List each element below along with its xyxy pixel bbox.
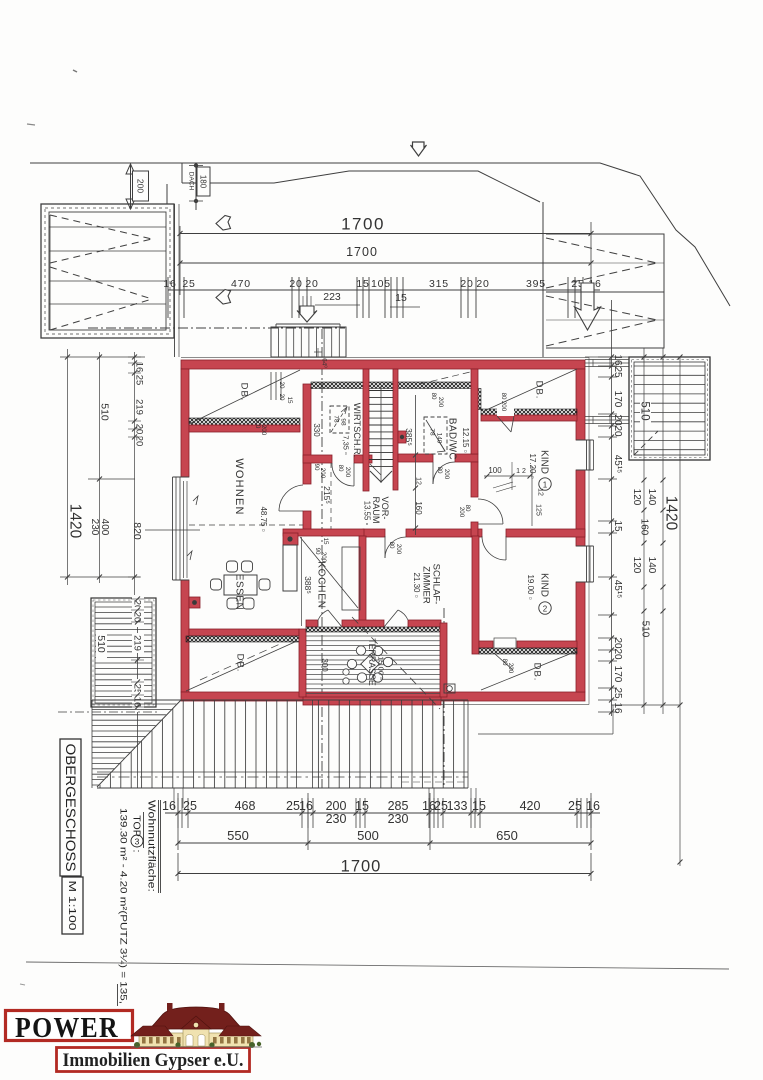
svg-text:200: 200 <box>319 468 326 479</box>
svg-text:WOHNEN: WOHNEN <box>233 458 245 515</box>
svg-text:25: 25 <box>286 799 300 813</box>
svg-text:170: 170 <box>612 391 623 408</box>
svg-text:16: 16 <box>612 354 623 366</box>
svg-text:120: 120 <box>631 557 642 574</box>
svg-text:KOCHEN: KOCHEN <box>316 561 327 609</box>
svg-text:12: 12 <box>537 488 544 496</box>
svg-text:25: 25 <box>568 799 582 813</box>
svg-text:650: 650 <box>496 828 518 843</box>
svg-text:223: 223 <box>323 291 341 303</box>
svg-text:125: 125 <box>535 504 542 516</box>
svg-text:Immobilien Gypser e.U.: Immobilien Gypser e.U. <box>63 1051 244 1071</box>
svg-text:5,0: 5,0 <box>254 420 261 429</box>
svg-text:200: 200 <box>344 467 351 478</box>
svg-text:219: 219 <box>134 399 145 415</box>
svg-text:120: 120 <box>631 489 642 506</box>
svg-text:DB.: DB. <box>239 383 250 402</box>
svg-text:215⁵: 215⁵ <box>322 486 332 504</box>
svg-text:285: 285 <box>388 799 409 813</box>
svg-text:133: 133 <box>447 799 468 813</box>
svg-text:80: 80 <box>500 393 507 400</box>
svg-text:200: 200 <box>443 469 450 480</box>
svg-text:139.30 m² - 4.20 m²(PUTZ 3¼) =: 139.30 m² - 4.20 m²(PUTZ 3¼) = 135, <box>118 808 129 1004</box>
svg-text:16: 16 <box>612 702 623 714</box>
svg-text:1 2: 1 2 <box>516 468 526 475</box>
svg-text:12.15 ▫: 12.15 ▫ <box>461 427 470 452</box>
svg-text:2: 2 <box>543 605 548 614</box>
svg-text:17.20 ▫: 17.20 ▫ <box>528 453 537 478</box>
svg-text:15: 15 <box>286 397 293 404</box>
svg-text:315: 315 <box>429 278 449 290</box>
svg-text:12: 12 <box>415 477 422 485</box>
svg-text:395: 395 <box>526 278 546 290</box>
svg-text:DB.: DB. <box>532 663 543 682</box>
svg-text:20: 20 <box>460 278 473 290</box>
svg-text:19.00 ▫: 19.00 ▫ <box>526 574 535 599</box>
svg-text:16: 16 <box>163 278 176 290</box>
svg-text:TERRASSE: TERRASSE <box>367 638 377 686</box>
svg-text:7,35 ▫: 7,35 ▫ <box>341 435 350 455</box>
svg-text:25: 25 <box>612 687 623 699</box>
svg-text:468: 468 <box>235 799 256 813</box>
svg-text:200: 200 <box>507 663 514 674</box>
svg-text:820: 820 <box>131 522 143 540</box>
svg-text:DACH: DACH <box>188 172 195 191</box>
svg-text:KIND: KIND <box>539 450 550 474</box>
svg-text:45¹⁵: 45¹⁵ <box>612 580 623 599</box>
svg-text:140: 140 <box>646 489 657 506</box>
svg-text:420: 420 <box>520 799 541 813</box>
svg-text:200: 200 <box>437 397 444 408</box>
svg-text:BAD/WC: BAD/WC <box>447 418 458 460</box>
svg-text:Wohnnutzfläche:: Wohnnutzfläche: <box>145 800 157 892</box>
svg-text:80: 80 <box>388 542 395 549</box>
svg-text:510: 510 <box>640 621 651 638</box>
svg-text:15: 15 <box>612 520 623 532</box>
svg-text:OBERGESCHOSS: OBERGESCHOSS <box>63 744 78 872</box>
svg-text:3: 3 <box>135 837 140 847</box>
svg-text:WIRTSCH.R.: WIRTSCH.R. <box>352 403 362 457</box>
svg-text:20: 20 <box>278 382 285 389</box>
svg-text:16: 16 <box>299 799 313 813</box>
svg-text:170: 170 <box>612 666 623 683</box>
svg-text:48.75 ▫: 48.75 ▫ <box>259 506 268 531</box>
svg-text:1700: 1700 <box>341 858 382 876</box>
svg-text:140: 140 <box>436 433 443 444</box>
svg-text:78: 78 <box>333 415 340 423</box>
svg-text:230: 230 <box>89 519 100 536</box>
svg-text:16: 16 <box>132 697 143 708</box>
svg-text:90: 90 <box>314 548 321 555</box>
svg-text:219: 219 <box>132 635 143 651</box>
svg-text:45¹⁵: 45¹⁵ <box>612 455 623 474</box>
svg-text:200: 200 <box>395 544 402 555</box>
svg-text:KIND: KIND <box>539 573 550 597</box>
svg-text:80: 80 <box>430 393 437 400</box>
svg-text:400: 400 <box>99 519 110 536</box>
svg-text:ZIMMER: ZIMMER <box>421 566 432 604</box>
svg-text:1420: 1420 <box>663 496 680 531</box>
svg-text:20: 20 <box>612 637 623 649</box>
svg-text:DB.: DB. <box>534 381 545 400</box>
svg-text:160: 160 <box>639 519 650 536</box>
svg-text:DB.: DB. <box>235 654 246 673</box>
svg-text:1420: 1420 <box>67 504 84 539</box>
svg-text:230: 230 <box>388 812 409 826</box>
svg-text:385⁵: 385⁵ <box>404 428 414 446</box>
svg-text:RAUM: RAUM <box>371 496 381 523</box>
svg-text:20: 20 <box>612 425 623 437</box>
svg-text:M 1:100: M 1:100 <box>66 881 77 932</box>
svg-text:388⁵: 388⁵ <box>303 576 313 594</box>
svg-text:20: 20 <box>278 394 285 401</box>
svg-text:510: 510 <box>95 635 107 653</box>
svg-text:20: 20 <box>132 612 143 623</box>
svg-text:160: 160 <box>414 501 423 515</box>
svg-text:200: 200 <box>136 179 146 193</box>
svg-text:25: 25 <box>134 375 145 386</box>
svg-text:80: 80 <box>501 659 508 666</box>
svg-text:105: 105 <box>371 278 391 290</box>
svg-text:98: 98 <box>340 418 347 426</box>
svg-text:1700: 1700 <box>346 245 378 259</box>
svg-text:90: 90 <box>313 464 320 471</box>
svg-text:510: 510 <box>98 403 110 421</box>
svg-text:100: 100 <box>488 466 502 475</box>
svg-text:15: 15 <box>322 538 329 545</box>
svg-text:510: 510 <box>638 401 650 420</box>
svg-text:140: 140 <box>646 557 657 574</box>
svg-text:20: 20 <box>612 648 623 660</box>
svg-text:20: 20 <box>289 278 302 290</box>
svg-text:15: 15 <box>472 799 486 813</box>
svg-text:20: 20 <box>476 278 489 290</box>
svg-text:180: 180 <box>199 175 208 189</box>
svg-text:230: 230 <box>326 812 347 826</box>
svg-text:80: 80 <box>436 467 443 474</box>
svg-text:POWER: POWER <box>15 1012 119 1044</box>
svg-text:25: 25 <box>612 366 623 378</box>
svg-text:20: 20 <box>612 414 623 426</box>
svg-text:330: 330 <box>312 423 321 437</box>
svg-text:550: 550 <box>227 828 249 843</box>
svg-text:13.55 ▫: 13.55 ▫ <box>362 501 371 526</box>
svg-text:ESSEN: ESSEN <box>234 574 245 610</box>
svg-text:80: 80 <box>337 465 344 472</box>
svg-text:TOP: TOP <box>130 815 142 836</box>
svg-text:1700: 1700 <box>341 215 385 234</box>
svg-text:21.30 ▫: 21.30 ▫ <box>412 572 421 597</box>
svg-text:64⁰: 64⁰ <box>321 358 329 368</box>
svg-text:78: 78 <box>429 428 436 436</box>
svg-text:200: 200 <box>326 799 347 813</box>
svg-text:200: 200 <box>458 507 465 518</box>
svg-text:500: 500 <box>357 828 379 843</box>
svg-text::: : <box>130 850 142 853</box>
svg-text:470: 470 <box>231 278 251 290</box>
svg-text:15.00 ▫: 15.00 ▫ <box>376 656 385 680</box>
svg-text:300: 300 <box>320 658 329 672</box>
svg-text:200: 200 <box>260 425 267 436</box>
